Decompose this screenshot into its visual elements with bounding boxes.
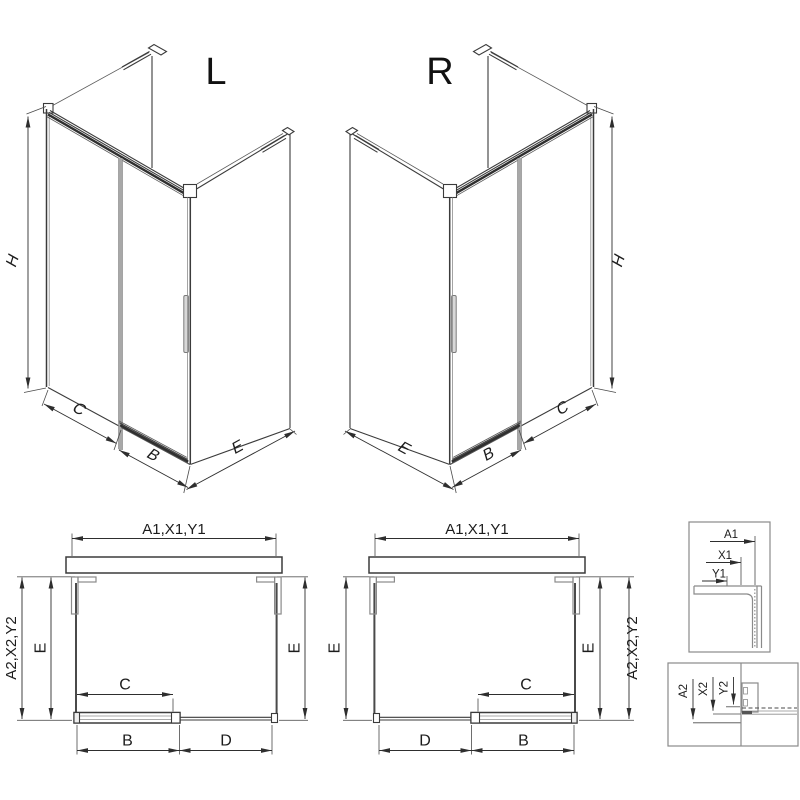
plan-right-c: C	[520, 677, 532, 694]
plan-left-d: D	[220, 733, 232, 750]
drawing-canvas: L H C B E R H C B E A1,X1,Y1 A2,X2,Y2 E …	[0, 0, 800, 800]
plan-left-e-left: E	[33, 643, 50, 654]
plan-left-e-right: E	[287, 643, 304, 654]
plan-right-d: D	[419, 733, 431, 750]
plan-left-top-dim: A1,X1,Y1	[142, 521, 205, 538]
view-title-r: R	[426, 51, 453, 93]
detail-label-x1: X1	[718, 550, 732, 562]
detail-label-y2: Y2	[719, 681, 731, 695]
plan-right-b: B	[518, 733, 529, 750]
detail-label-a1: A1	[724, 529, 738, 541]
technical-drawing: L H C B E R H C B E A1,X1,Y1 A2,X2,Y2 E …	[0, 0, 800, 800]
plan-left-outer-dim: A2,X2,Y2	[3, 616, 20, 679]
detail-bottom-profile	[741, 663, 797, 746]
detail-label-x2: X2	[698, 682, 710, 696]
detail-top-profile	[694, 586, 762, 648]
plan-right-e-left: E	[327, 643, 344, 654]
iso-left-geometry	[24, 45, 297, 494]
view-title-l: L	[205, 51, 226, 93]
iso-right-geometry	[344, 45, 617, 494]
plan-left-b: B	[122, 733, 133, 750]
dim-label-e-left: E	[230, 436, 245, 459]
plan-left-c: C	[119, 677, 131, 694]
plan-right-outer-dim: A2,X2,Y2	[624, 616, 641, 679]
plan-view-right: A1,X1,Y1 E E A2,X2,Y2 C D B	[327, 521, 642, 755]
iso-view-right: R H C B E	[344, 45, 629, 494]
detail-label-y1: Y1	[712, 569, 726, 581]
iso-view-left: L H C B E	[3, 45, 297, 494]
plan-left-geometry	[17, 534, 308, 755]
detail-bottom-frame	[668, 663, 798, 746]
dim-label-b-right: B	[481, 443, 496, 466]
plan-view-left: A1,X1,Y1 A2,X2,Y2 E E C B D	[3, 521, 308, 755]
dim-label-b-left: B	[143, 446, 164, 465]
dim-label-h-left: H	[3, 251, 22, 271]
dim-label-e-right: E	[394, 439, 415, 458]
detail-label-a2: A2	[678, 684, 690, 698]
detail-box-bottom: Y2 X2 A2	[668, 663, 798, 746]
detail-box-top: A1 X1 Y1	[689, 522, 770, 652]
plan-right-top-dim: A1,X1,Y1	[445, 521, 508, 538]
plan-right-e-right: E	[581, 643, 598, 654]
